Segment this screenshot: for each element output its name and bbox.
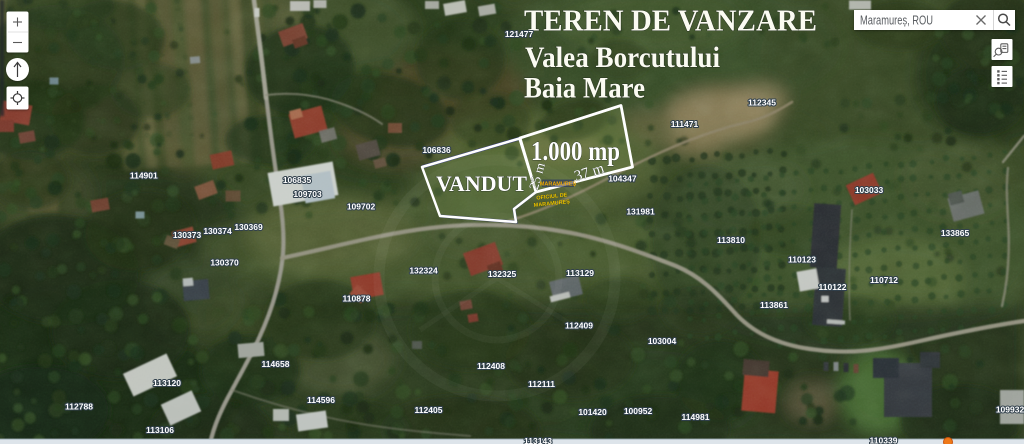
svg-text:112111: 112111 <box>528 379 555 389</box>
svg-text:130373: 130373 <box>173 230 202 240</box>
svg-text:Baia Mare: Baia Mare <box>524 72 645 105</box>
svg-text:113120: 113120 <box>153 378 181 388</box>
svg-text:121477: 121477 <box>505 29 534 39</box>
svg-text:113129: 113129 <box>566 268 594 278</box>
svg-text:104347: 104347 <box>608 174 637 184</box>
svg-text:132325: 132325 <box>488 269 517 279</box>
svg-text:114901: 114901 <box>130 170 158 180</box>
svg-text:113861: 113861 <box>760 300 788 310</box>
svg-text:110339: 110339 <box>870 436 898 444</box>
svg-text:113106: 113106 <box>146 425 174 435</box>
svg-text:109703: 109703 <box>293 189 322 199</box>
svg-text:112345: 112345 <box>748 98 776 108</box>
svg-text:112788: 112788 <box>65 402 93 412</box>
svg-text:109932: 109932 <box>996 405 1024 415</box>
svg-text:106836: 106836 <box>422 145 451 155</box>
svg-text:103004: 103004 <box>648 336 677 346</box>
svg-text:110122: 110122 <box>819 282 847 292</box>
svg-text:103033: 103033 <box>855 185 884 195</box>
svg-text:114981: 114981 <box>682 412 710 422</box>
svg-text:MARAMUREȘ: MARAMUREȘ <box>540 182 577 188</box>
svg-text:109702: 109702 <box>347 202 376 212</box>
svg-text:1.000 mp: 1.000 mp <box>531 136 620 166</box>
svg-text:112405: 112405 <box>415 405 443 415</box>
svg-text:130374: 130374 <box>203 226 232 236</box>
svg-text:130369: 130369 <box>234 222 263 232</box>
svg-text:VANDUT: VANDUT <box>436 171 527 196</box>
svg-text:110878: 110878 <box>343 294 371 304</box>
svg-text:111471: 111471 <box>671 119 699 129</box>
svg-text:110123: 110123 <box>788 255 816 265</box>
svg-text:Maramureș, ROU: Maramureș, ROU <box>860 14 933 28</box>
svg-text:114596: 114596 <box>307 395 335 405</box>
svg-text:Valea Borcutului: Valea Borcutului <box>525 41 720 74</box>
svg-text:101420: 101420 <box>578 407 607 417</box>
svg-text:TEREN DE VANZARE: TEREN DE VANZARE <box>524 3 817 38</box>
svg-text:114658: 114658 <box>262 359 290 369</box>
svg-text:132324: 132324 <box>409 266 438 276</box>
svg-text:100952: 100952 <box>624 406 653 416</box>
svg-text:133865: 133865 <box>941 228 970 238</box>
svg-text:110712: 110712 <box>870 275 898 285</box>
svg-text:131981: 131981 <box>626 207 655 217</box>
svg-text:130370: 130370 <box>210 258 239 268</box>
svg-text:112408: 112408 <box>477 361 505 371</box>
svg-text:113810: 113810 <box>717 235 745 245</box>
svg-text:113143: 113143 <box>524 436 552 444</box>
svg-text:112409: 112409 <box>565 321 593 331</box>
svg-text:106835: 106835 <box>283 175 312 185</box>
